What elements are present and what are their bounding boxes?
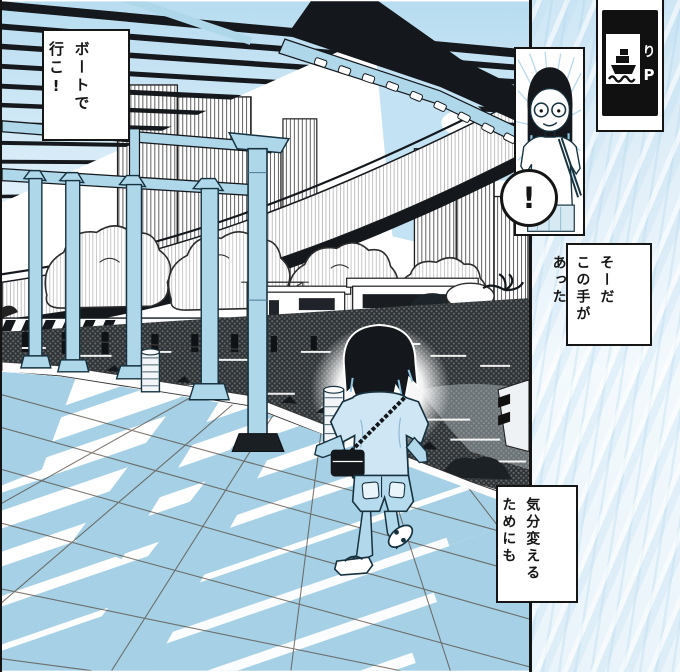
caption-boat: ボートで 行こ! (42, 29, 130, 141)
sign-char-1: り (642, 45, 655, 60)
manga-page: ボートで 行こ! ! (0, 0, 680, 672)
caption-mood-text: 気分変える ためにも (500, 497, 540, 582)
caption-idea: そーだ この手が あった (566, 243, 652, 346)
caption-mood: 気分変える ためにも (496, 485, 578, 603)
boat-pier-icon (606, 34, 640, 84)
caption-idea-text: そーだ この手が あった (551, 255, 615, 323)
panel-pier-sign: り P (596, 0, 664, 132)
pier-sign: り P (598, 0, 662, 130)
exclamation-text: ! (522, 181, 535, 215)
sign-char-2: P (644, 66, 655, 84)
exclamation-bubble: ! (500, 169, 558, 227)
shoulder-bag (331, 450, 365, 477)
caption-boat-text: ボートで 行こ! (47, 41, 91, 113)
